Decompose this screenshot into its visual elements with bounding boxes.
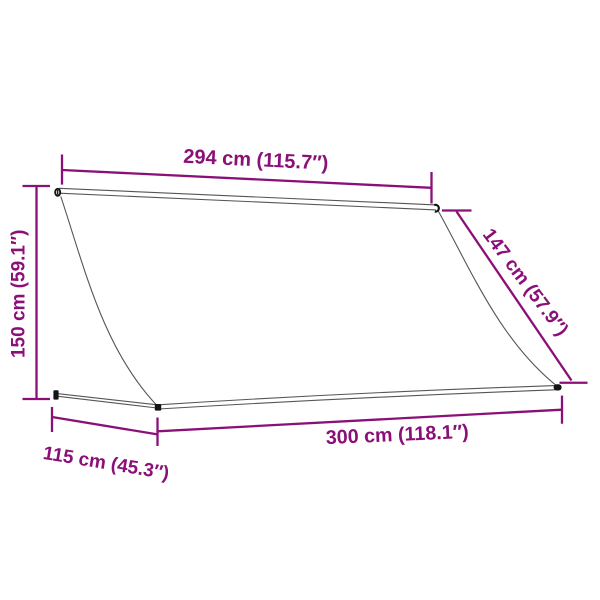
svg-text:150 cm (59.1″): 150 cm (59.1″) [9,230,30,358]
